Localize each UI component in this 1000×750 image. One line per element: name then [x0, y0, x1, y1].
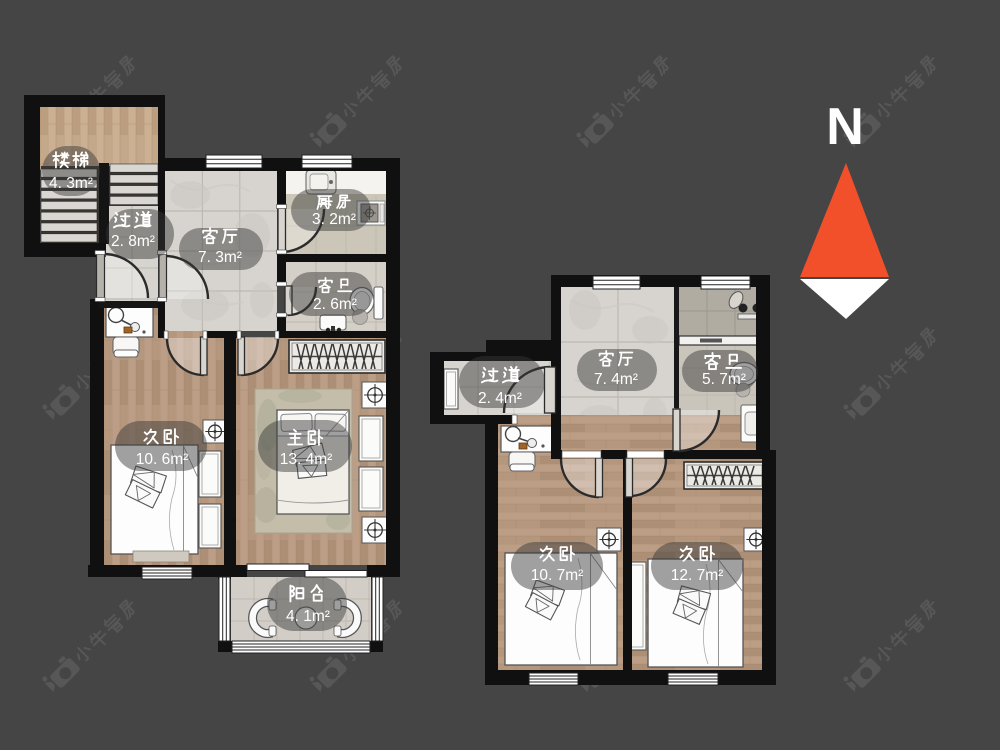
svg-text:2. 8m²: 2. 8m²	[111, 233, 155, 250]
svg-text:7. 4m²: 7. 4m²	[594, 371, 638, 388]
svg-text:10. 7m²: 10. 7m²	[531, 567, 584, 584]
svg-text:13. 4m²: 13. 4m²	[280, 451, 333, 468]
svg-text:4. 3m²: 4. 3m²	[49, 175, 93, 192]
svg-text:5. 7m²: 5. 7m²	[702, 371, 746, 388]
svg-text:2. 4m²: 2. 4m²	[478, 390, 522, 407]
svg-text:N: N	[826, 98, 864, 156]
svg-text:3. 2m²: 3. 2m²	[312, 211, 356, 228]
svg-text:7. 3m²: 7. 3m²	[198, 249, 242, 266]
svg-text:4. 1m²: 4. 1m²	[286, 608, 330, 625]
svg-text:12. 7m²: 12. 7m²	[671, 567, 724, 584]
svg-text:10. 6m²: 10. 6m²	[136, 451, 189, 468]
svg-text:2. 6m²: 2. 6m²	[313, 296, 357, 313]
